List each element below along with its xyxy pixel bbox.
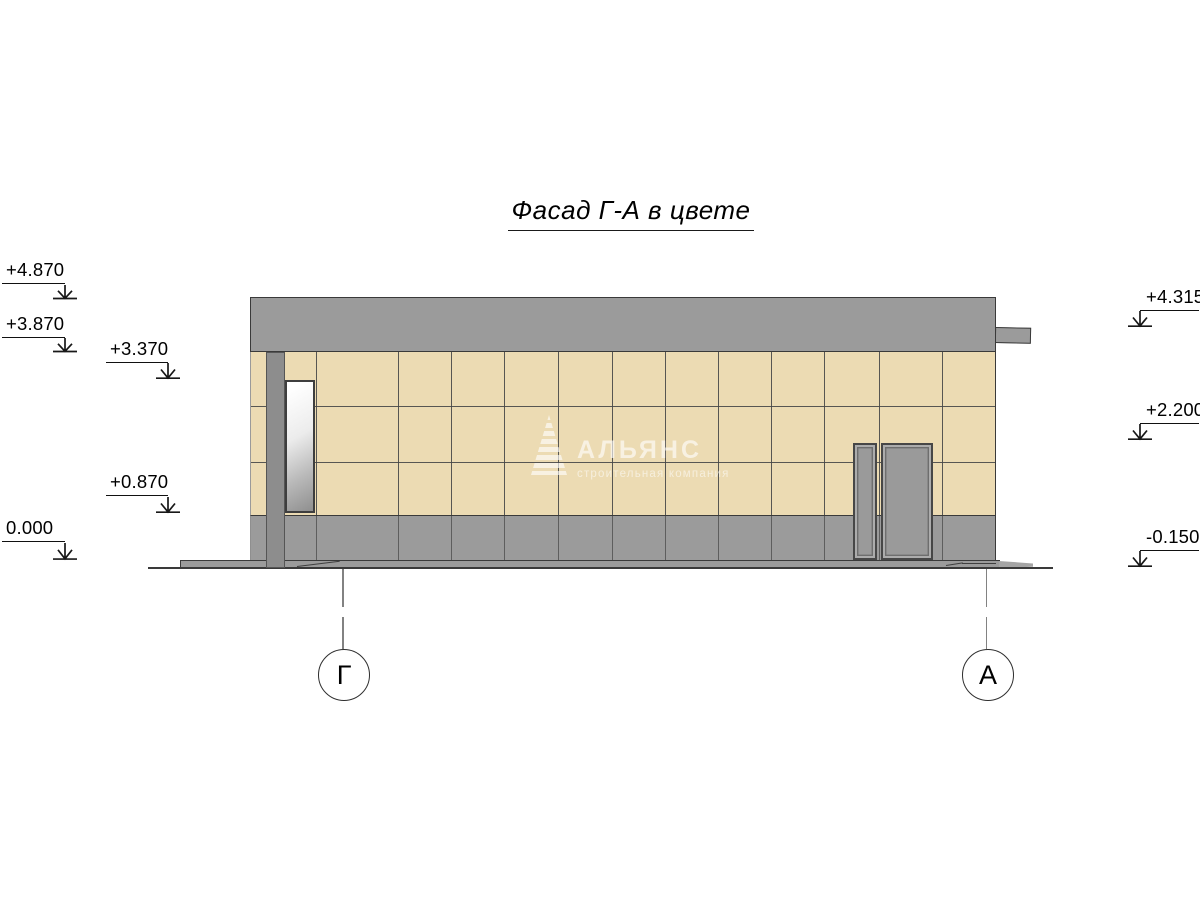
roof-side-fin xyxy=(995,327,1031,344)
tile-joint-vertical xyxy=(718,516,719,560)
elevation-value: +3.370 xyxy=(110,338,168,360)
tile-joint-vertical xyxy=(451,352,452,515)
tile-joint-vertical xyxy=(504,516,505,560)
elevation-mark-3370: +3.370 xyxy=(106,362,168,363)
elevation-arrow-icon xyxy=(1127,424,1153,442)
elevation-mark-4870: +4.870 xyxy=(2,283,65,284)
facade-drawing-sheet: Фасад Г-А в цвете АЛЬЯНС строительная ко… xyxy=(0,0,1200,900)
door-step-line xyxy=(962,563,996,564)
elevation-arrow-icon xyxy=(52,338,78,354)
elevation-value: +0.870 xyxy=(110,471,168,493)
entrance-door-left-leaf xyxy=(853,443,878,560)
axis-bubble-g-label: Г xyxy=(337,660,352,691)
tile-joint-vertical xyxy=(451,516,452,560)
tile-joint-vertical xyxy=(398,516,399,560)
axis-line-g xyxy=(342,569,343,649)
elevation-mark-2200: +2.200 xyxy=(1140,423,1199,424)
elevation-mark-0870: +0.870 xyxy=(106,495,168,496)
axis-line-a xyxy=(986,569,987,649)
tile-joint-vertical xyxy=(942,516,943,560)
elevation-mark-4315: +4.315 xyxy=(1140,310,1199,311)
elevation-arrow-icon xyxy=(155,497,181,515)
roof-parapet-band xyxy=(250,297,996,352)
elevation-arrow-icon xyxy=(52,285,78,301)
tile-joint-vertical xyxy=(612,352,613,515)
tile-joint-horizontal xyxy=(251,406,995,407)
elevation-value: +3.870 xyxy=(6,313,64,335)
tile-joint-vertical xyxy=(718,352,719,515)
entrance-door-right-leaf xyxy=(881,443,933,560)
tile-joint-vertical xyxy=(942,352,943,515)
corner-pilaster xyxy=(266,352,285,568)
elevation-mark-0000: 0.000 xyxy=(2,541,65,542)
elevation-value: -0.150 xyxy=(1146,526,1200,548)
tile-joint-vertical xyxy=(824,352,825,515)
tile-joint-vertical xyxy=(316,516,317,560)
tile-joint-vertical xyxy=(504,352,505,515)
elevation-mark-3870: +3.870 xyxy=(2,337,65,338)
elevation-arrow-icon xyxy=(1127,551,1153,569)
elevation-value: +4.870 xyxy=(6,259,64,281)
tile-joint-vertical xyxy=(316,352,317,515)
tile-joint-vertical xyxy=(771,516,772,560)
axis-bubble-a-label: А xyxy=(979,660,997,691)
elevation-value: 0.000 xyxy=(6,517,53,539)
axis-bubble-g: Г xyxy=(318,649,370,701)
elevation-arrow-icon xyxy=(1127,311,1153,329)
elevation-value: +2.200 xyxy=(1146,399,1200,421)
tile-joint-vertical xyxy=(771,352,772,515)
tile-joint-vertical xyxy=(558,516,559,560)
tile-joint-vertical xyxy=(665,516,666,560)
axis-bubble-a: А xyxy=(962,649,1014,701)
elevation-arrow-icon xyxy=(52,543,78,562)
narrow-window xyxy=(285,380,315,513)
tile-joint-vertical xyxy=(824,516,825,560)
tile-joint-vertical xyxy=(558,352,559,515)
elevation-mark-minus-0150: -0.150 xyxy=(1140,550,1199,551)
tile-joint-vertical xyxy=(398,352,399,515)
elevation-arrow-icon xyxy=(155,363,181,381)
drawing-title: Фасад Г-А в цвете xyxy=(508,195,754,231)
elevation-value: +4.315 xyxy=(1146,286,1200,308)
tile-joint-vertical xyxy=(665,352,666,515)
tile-joint-vertical xyxy=(612,516,613,560)
